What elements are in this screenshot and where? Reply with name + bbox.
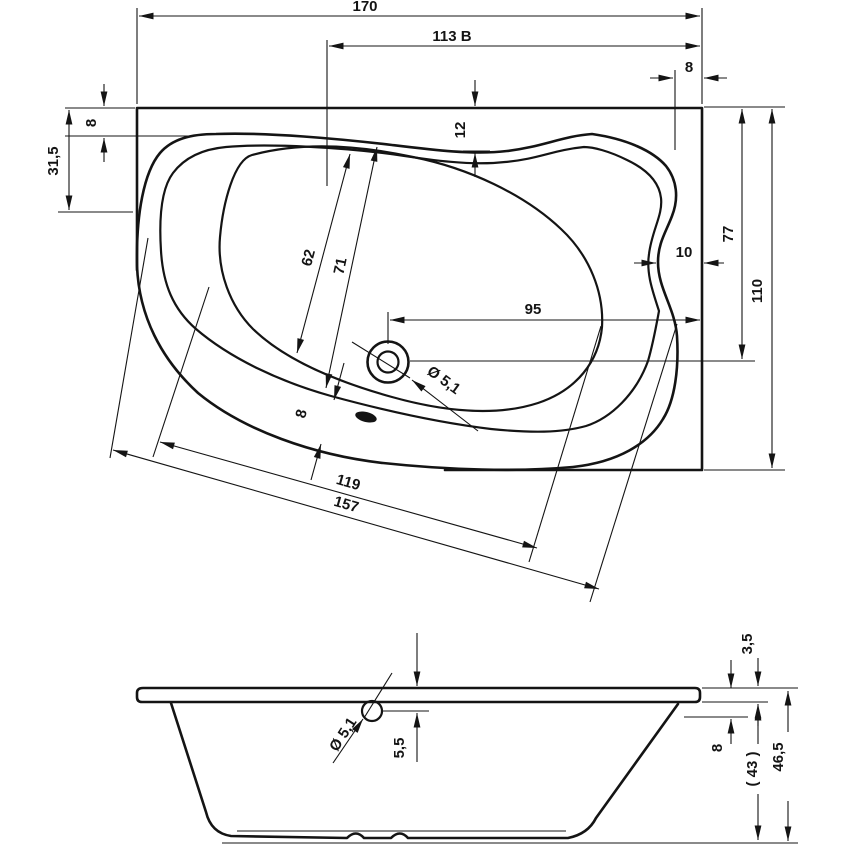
dim-label: 8 xyxy=(292,408,311,420)
dim-label: 46,5 xyxy=(770,742,787,771)
dim-rim-edge-height: 8 xyxy=(709,660,731,752)
dim-label: 8 xyxy=(83,119,100,127)
dim-rim-thickness: 3,5 xyxy=(739,634,758,726)
dim-overflow-drop: 5,5 xyxy=(383,633,429,762)
tub-outer-rim xyxy=(137,134,678,470)
dim-label: 12 xyxy=(452,122,469,139)
dim-total-height: 46,5 xyxy=(770,691,788,841)
dim-label: 170 xyxy=(352,0,377,15)
dim-label: 157 xyxy=(332,493,361,516)
dim-label: 10 xyxy=(676,244,693,261)
dim-label: 113 B xyxy=(432,28,471,45)
bathtub-drawing-canvas: 170 113 B 8 8 31,5 xyxy=(0,0,848,850)
dim-label: 5,5 xyxy=(391,738,408,759)
dim-rim-width-top-left: 8 xyxy=(65,84,196,162)
dim-label: 8 xyxy=(709,744,726,752)
dim-drain-offset-depth: 77 xyxy=(410,107,785,361)
dim-well-length: 119 xyxy=(153,287,601,562)
side-body xyxy=(171,703,678,838)
top-view: 170 113 B 8 8 31,5 xyxy=(45,0,785,602)
side-view: Ø 5,1 5,5 3,5 8 ( 43 ) xyxy=(137,633,798,843)
dim-rim-width-bottom: 8 xyxy=(292,363,344,480)
dim-label: 95 xyxy=(525,301,542,318)
bathing-well xyxy=(220,146,603,411)
dim-inner-depth: ( 43 ) xyxy=(744,706,761,840)
dim-well-width-inner: 62 xyxy=(297,154,350,353)
overflow-circle xyxy=(362,701,382,721)
ext-line xyxy=(590,324,677,602)
dim-label: 8 xyxy=(685,59,693,76)
dim-label: 31,5 xyxy=(45,146,62,175)
overflow-slot xyxy=(354,409,378,424)
dim-tub-length: 157 xyxy=(110,238,677,602)
dim-overall-depth: 110 xyxy=(704,109,785,470)
side-rim-flange xyxy=(137,688,700,702)
dim-label: 71 xyxy=(331,256,351,276)
dim-label: Ø 5,1 xyxy=(424,363,464,398)
dim-overall-length: 170 xyxy=(137,0,702,104)
dim-label: Ø 5,1 xyxy=(326,715,360,755)
dim-label: 119 xyxy=(334,471,362,494)
deck-outline xyxy=(137,108,702,470)
tub-inner-rim xyxy=(160,146,661,432)
dim-label: ( 43 ) xyxy=(744,751,761,786)
drain-outer-circle xyxy=(368,342,409,383)
overflow-diameter-callout: Ø 5,1 xyxy=(326,673,392,763)
technical-drawing: 170 113 B 8 8 31,5 xyxy=(0,0,848,850)
dim-label: 62 xyxy=(298,248,319,269)
dim-label: 77 xyxy=(720,226,737,243)
dim-label: 3,5 xyxy=(739,634,756,655)
dim-label: 110 xyxy=(749,279,766,303)
ext-line xyxy=(110,238,148,458)
dim-rim-offset-top-right: 8 xyxy=(650,59,727,150)
